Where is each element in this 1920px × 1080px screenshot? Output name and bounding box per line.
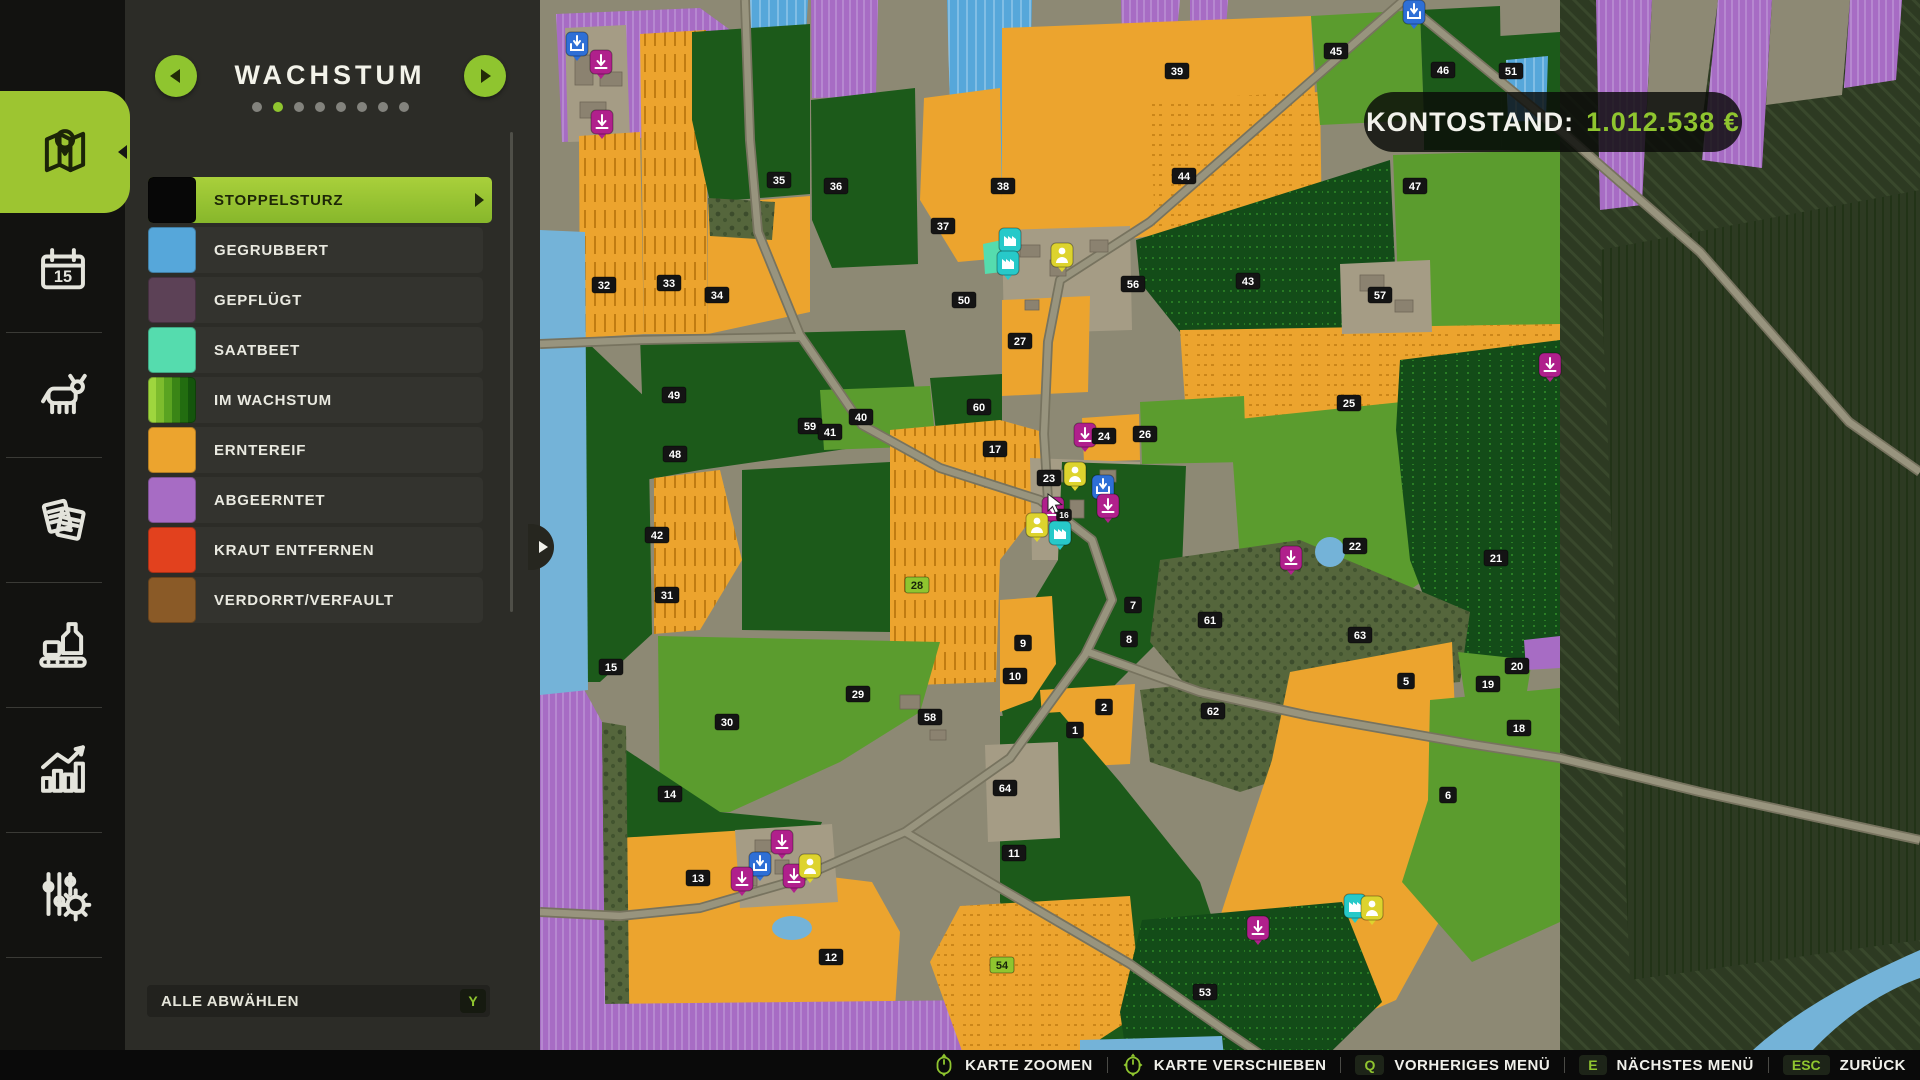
animals-icon	[34, 365, 92, 423]
svg-text:37: 37	[937, 221, 949, 233]
deselect-all-label: ALLE ABWÄHLEN	[161, 985, 299, 1017]
field-label-23[interactable]: 23	[1037, 470, 1061, 486]
field-label-48[interactable]: 48	[663, 446, 687, 462]
calendar-icon: 15	[34, 242, 92, 300]
field-label-61[interactable]: 61	[1198, 612, 1222, 628]
settings-icon	[34, 865, 92, 923]
svg-text:56: 56	[1127, 279, 1139, 291]
field-label-39[interactable]: 39	[1165, 63, 1189, 79]
hint-karte-verschieben[interactable]: KARTE VERSCHIEBEN	[1122, 1052, 1327, 1078]
controls-hint-bar: KARTE ZOOMEN KARTE VERSCHIEBENQVORHERIGE…	[0, 1050, 1920, 1080]
field-label-6[interactable]: 6	[1440, 787, 1457, 803]
field-label-25[interactable]: 25	[1337, 395, 1361, 411]
legend-item-gepflügt[interactable]: GEPFLÜGT	[148, 277, 483, 323]
sidebar-divider	[6, 832, 102, 833]
map-icon	[36, 123, 94, 181]
svg-text:60: 60	[973, 402, 985, 414]
svg-text:41: 41	[824, 427, 836, 439]
svg-text:5: 5	[1403, 676, 1409, 688]
hint-divider	[1768, 1057, 1769, 1073]
field-label-64[interactable]: 64	[993, 780, 1017, 796]
field-label-2[interactable]: 2	[1096, 699, 1113, 715]
svg-text:25: 25	[1343, 398, 1355, 410]
legend-color-swatch	[148, 277, 196, 323]
hint-label: NÄCHSTES MENÜ	[1617, 1057, 1754, 1074]
field-label-50[interactable]: 50	[952, 292, 976, 308]
svg-text:51: 51	[1505, 66, 1517, 78]
mouse-scroll-icon	[933, 1052, 955, 1078]
svg-text:33: 33	[663, 278, 675, 290]
active-item-notch	[118, 145, 127, 159]
field-label-60[interactable]: 60	[967, 399, 991, 415]
legend-item-kraut-entfernen[interactable]: KRAUT ENTFERNEN	[148, 527, 483, 573]
legend-item-label: VERDORRT/VERFAULT	[214, 577, 394, 623]
legend-color-swatch	[148, 427, 196, 473]
svg-text:64: 64	[999, 783, 1012, 795]
contracts-icon	[34, 490, 92, 548]
field-label-58[interactable]: 58	[918, 709, 942, 725]
field-label-19[interactable]: 19	[1476, 676, 1500, 692]
statistics-icon	[34, 740, 92, 798]
key-badge-q: Q	[1355, 1055, 1384, 1075]
svg-text:12: 12	[825, 952, 837, 964]
field-label-35[interactable]: 35	[767, 172, 791, 188]
svg-text:7: 7	[1130, 600, 1136, 612]
field-label-46[interactable]: 46	[1431, 62, 1455, 78]
svg-text:15: 15	[53, 268, 71, 286]
legend-color-swatch	[148, 527, 196, 573]
legend-item-stoppelsturz[interactable]: STOPPELSTURZ	[148, 177, 492, 223]
legend-item-label: ABGEERNTET	[214, 477, 325, 523]
field-label-54[interactable]: 54	[990, 957, 1014, 973]
field-label-15[interactable]: 15	[599, 659, 623, 675]
svg-text:28: 28	[911, 580, 923, 592]
page-dot[interactable]	[378, 102, 388, 112]
svg-text:46: 46	[1437, 65, 1449, 77]
field-label-63[interactable]: 63	[1348, 627, 1372, 643]
field-label-11[interactable]: 11	[1002, 845, 1026, 861]
svg-text:20: 20	[1511, 661, 1523, 673]
field-label-44[interactable]: 44	[1172, 168, 1196, 184]
hint-divider	[1564, 1057, 1565, 1073]
key-badge-esc: ESC	[1783, 1055, 1830, 1075]
hint-divider	[1107, 1057, 1108, 1073]
hint-karte-zoomen[interactable]: KARTE ZOOMEN	[933, 1052, 1093, 1078]
field-label-26[interactable]: 26	[1133, 426, 1157, 442]
legend-item-label: GEGRUBBERT	[214, 227, 329, 273]
sidebar-divider	[6, 457, 102, 458]
legend-color-swatch	[148, 477, 196, 523]
svg-text:16: 16	[1059, 510, 1069, 520]
world-map[interactable]: 3536375032333449406059414842311528293058…	[540, 0, 1920, 1080]
field-label-1[interactable]: 1	[1067, 722, 1084, 738]
field-label-7[interactable]: 7	[1125, 597, 1142, 613]
field-label-5[interactable]: 5	[1398, 673, 1415, 689]
legend-item-label: SAATBEET	[214, 327, 300, 373]
field-label-31[interactable]: 31	[655, 587, 679, 603]
key-badge-e: E	[1579, 1055, 1606, 1075]
field-label-9[interactable]: 9	[1015, 635, 1032, 651]
svg-text:54: 54	[996, 960, 1009, 972]
page-dot[interactable]	[357, 102, 367, 112]
svg-text:63: 63	[1354, 630, 1366, 642]
svg-text:26: 26	[1139, 429, 1151, 441]
hint-label: KARTE ZOOMEN	[965, 1057, 1093, 1074]
page-dot[interactable]	[336, 102, 346, 112]
field-label-43[interactable]: 43	[1236, 273, 1260, 289]
field-label-20[interactable]: 20	[1505, 658, 1529, 674]
svg-text:23: 23	[1043, 473, 1055, 485]
field-label-28[interactable]: 28	[905, 577, 929, 593]
hint-divider	[1340, 1057, 1341, 1073]
legend-color-swatch	[148, 177, 196, 223]
svg-text:22: 22	[1349, 541, 1361, 553]
field-label-13[interactable]: 13	[686, 870, 710, 886]
sidebar-item-calendar[interactable]: 15	[0, 210, 125, 332]
svg-text:44: 44	[1178, 171, 1191, 183]
legend-item-saatbeet[interactable]: SAATBEET	[148, 327, 483, 373]
sidebar-item-statistics[interactable]	[0, 708, 125, 830]
svg-text:58: 58	[924, 712, 936, 724]
field-label-33[interactable]: 33	[657, 275, 681, 291]
legend-item-gegrubbert[interactable]: GEGRUBBERT	[148, 227, 483, 273]
account-balance-label: KONTOSTAND:	[1366, 107, 1574, 138]
svg-text:2: 2	[1101, 702, 1107, 714]
legend-color-swatch	[148, 327, 196, 373]
legend-item-verdorrt-verfault[interactable]: VERDORRT/VERFAULT	[148, 577, 483, 623]
game-screen: 3536375032333449406059414842311528293058…	[0, 0, 1920, 1080]
field-label-22[interactable]: 22	[1343, 538, 1367, 554]
production-icon	[34, 615, 92, 673]
sidebar-divider	[6, 707, 102, 708]
svg-text:15: 15	[605, 662, 617, 674]
svg-text:48: 48	[669, 449, 681, 461]
hint-label: KARTE VERSCHIEBEN	[1154, 1057, 1327, 1074]
deselect-all-button[interactable]: ALLE ABWÄHLEN Y	[147, 985, 490, 1017]
svg-text:19: 19	[1482, 679, 1494, 691]
hint-zurück[interactable]: ESCZURÜCK	[1783, 1055, 1906, 1075]
legend-item-im-wachstum[interactable]: IM WACHSTUM	[148, 377, 483, 423]
legend-item-label: KRAUT ENTFERNEN	[214, 527, 374, 573]
svg-text:43: 43	[1242, 276, 1254, 288]
svg-text:17: 17	[989, 444, 1001, 456]
key-badge-y: Y	[460, 989, 486, 1013]
page-dots	[125, 102, 535, 112]
sidebar-item-contracts[interactable]	[0, 458, 125, 580]
page-title: WACHSTUM	[125, 60, 535, 91]
legend-scrollbar[interactable]	[510, 132, 513, 612]
sidebar-item-production[interactable]	[0, 583, 125, 705]
svg-text:59: 59	[804, 421, 816, 433]
svg-text:34: 34	[711, 290, 724, 302]
field-label-27[interactable]: 27	[1008, 333, 1032, 349]
field-label-37[interactable]: 37	[931, 218, 955, 234]
field-label-56[interactable]: 56	[1121, 276, 1145, 292]
sidebar-divider	[6, 582, 102, 583]
field-label-36[interactable]: 36	[824, 178, 848, 194]
svg-text:14: 14	[664, 789, 677, 801]
growth-menu-panel: WACHSTUM STOPPELSTURZGEGRUBBERTGEPFLÜGTS…	[125, 0, 540, 1080]
field-label-30[interactable]: 30	[715, 714, 739, 730]
page-dot[interactable]	[315, 102, 325, 112]
svg-text:8: 8	[1126, 634, 1132, 646]
page-dot[interactable]	[399, 102, 409, 112]
legend-item-label: IM WACHSTUM	[214, 377, 332, 423]
field-label-8[interactable]: 8	[1121, 631, 1138, 647]
svg-text:47: 47	[1409, 181, 1421, 193]
field-label-21[interactable]: 21	[1484, 550, 1508, 566]
svg-text:53: 53	[1199, 987, 1211, 999]
main-menu-sidebar: 15	[0, 0, 125, 1080]
svg-text:9: 9	[1020, 638, 1026, 650]
svg-text:42: 42	[651, 530, 663, 542]
field-label-29[interactable]: 29	[846, 686, 870, 702]
svg-text:50: 50	[958, 295, 970, 307]
field-label-42[interactable]: 42	[645, 527, 669, 543]
field-label-51[interactable]: 51	[1499, 63, 1523, 79]
svg-text:49: 49	[668, 390, 680, 402]
selected-arrow-icon	[475, 193, 484, 207]
svg-text:61: 61	[1204, 615, 1216, 627]
page-dot[interactable]	[252, 102, 262, 112]
field-label-32[interactable]: 32	[592, 277, 616, 293]
svg-text:38: 38	[997, 181, 1009, 193]
field-label-10[interactable]: 10	[1003, 668, 1027, 684]
field-label-57[interactable]: 57	[1368, 287, 1392, 303]
field-label-49[interactable]: 49	[662, 387, 686, 403]
svg-text:31: 31	[661, 590, 673, 602]
svg-text:57: 57	[1374, 290, 1386, 302]
field-label-40[interactable]: 40	[849, 409, 873, 425]
svg-text:40: 40	[855, 412, 867, 424]
sidebar-divider	[6, 332, 102, 333]
field-label-14[interactable]: 14	[658, 786, 682, 802]
mouse-move-icon	[1122, 1052, 1144, 1078]
svg-text:21: 21	[1490, 553, 1502, 565]
field-label-24[interactable]: 24	[1092, 428, 1116, 444]
legend-color-swatch	[148, 377, 196, 423]
legend-color-swatch	[148, 577, 196, 623]
legend-item-label: ERNTEREIF	[214, 427, 306, 473]
field-label-17[interactable]: 17	[983, 441, 1007, 457]
svg-text:18: 18	[1513, 723, 1525, 735]
svg-text:45: 45	[1330, 46, 1342, 58]
svg-text:32: 32	[598, 280, 610, 292]
svg-text:13: 13	[692, 873, 704, 885]
field-label-62[interactable]: 62	[1201, 703, 1225, 719]
hint-label: VORHERIGES MENÜ	[1394, 1057, 1550, 1074]
legend-item-erntereif[interactable]: ERNTEREIF	[148, 427, 483, 473]
svg-text:11: 11	[1008, 848, 1020, 860]
field-label-34[interactable]: 34	[705, 287, 729, 303]
legend-item-label: GEPFLÜGT	[214, 277, 302, 323]
field-label-45[interactable]: 45	[1324, 43, 1348, 59]
legend-item-label: STOPPELSTURZ	[214, 177, 343, 223]
legend-item-abgeerntet[interactable]: ABGEERNTET	[148, 477, 483, 523]
hint-vorheriges-menü[interactable]: QVORHERIGES MENÜ	[1355, 1055, 1550, 1075]
legend-color-swatch	[148, 227, 196, 273]
svg-text:39: 39	[1171, 66, 1183, 78]
field-label-47[interactable]: 47	[1403, 178, 1427, 194]
account-balance: KONTOSTAND: 1.012.538 €	[1364, 92, 1742, 152]
svg-text:36: 36	[830, 181, 842, 193]
svg-text:10: 10	[1009, 671, 1021, 683]
field-label-18[interactable]: 18	[1507, 720, 1531, 736]
svg-text:1: 1	[1072, 725, 1078, 737]
svg-text:30: 30	[721, 717, 733, 729]
page-dot[interactable]	[294, 102, 304, 112]
field-label-41[interactable]: 41	[818, 424, 842, 440]
field-label-16[interactable]: 16	[1057, 509, 1072, 521]
page-dot-active[interactable]	[273, 102, 283, 112]
sidebar-item-map[interactable]	[0, 91, 130, 213]
account-balance-amount: 1.012.538 €	[1586, 107, 1740, 138]
svg-text:6: 6	[1445, 790, 1451, 802]
svg-text:29: 29	[852, 689, 864, 701]
sidebar-item-animals[interactable]	[0, 333, 125, 455]
svg-text:27: 27	[1014, 336, 1026, 348]
svg-text:62: 62	[1207, 706, 1219, 718]
chevron-right-icon	[539, 541, 548, 553]
field-label-53[interactable]: 53	[1193, 984, 1217, 1000]
field-label-12[interactable]: 12	[819, 949, 843, 965]
sidebar-divider	[6, 957, 102, 958]
hint-nächstes-menü[interactable]: ENÄCHSTES MENÜ	[1579, 1055, 1754, 1075]
field-label-38[interactable]: 38	[991, 178, 1015, 194]
sidebar-item-settings[interactable]	[0, 833, 125, 955]
hint-label: ZURÜCK	[1840, 1057, 1906, 1074]
svg-text:24: 24	[1098, 431, 1111, 443]
svg-text:35: 35	[773, 175, 785, 187]
